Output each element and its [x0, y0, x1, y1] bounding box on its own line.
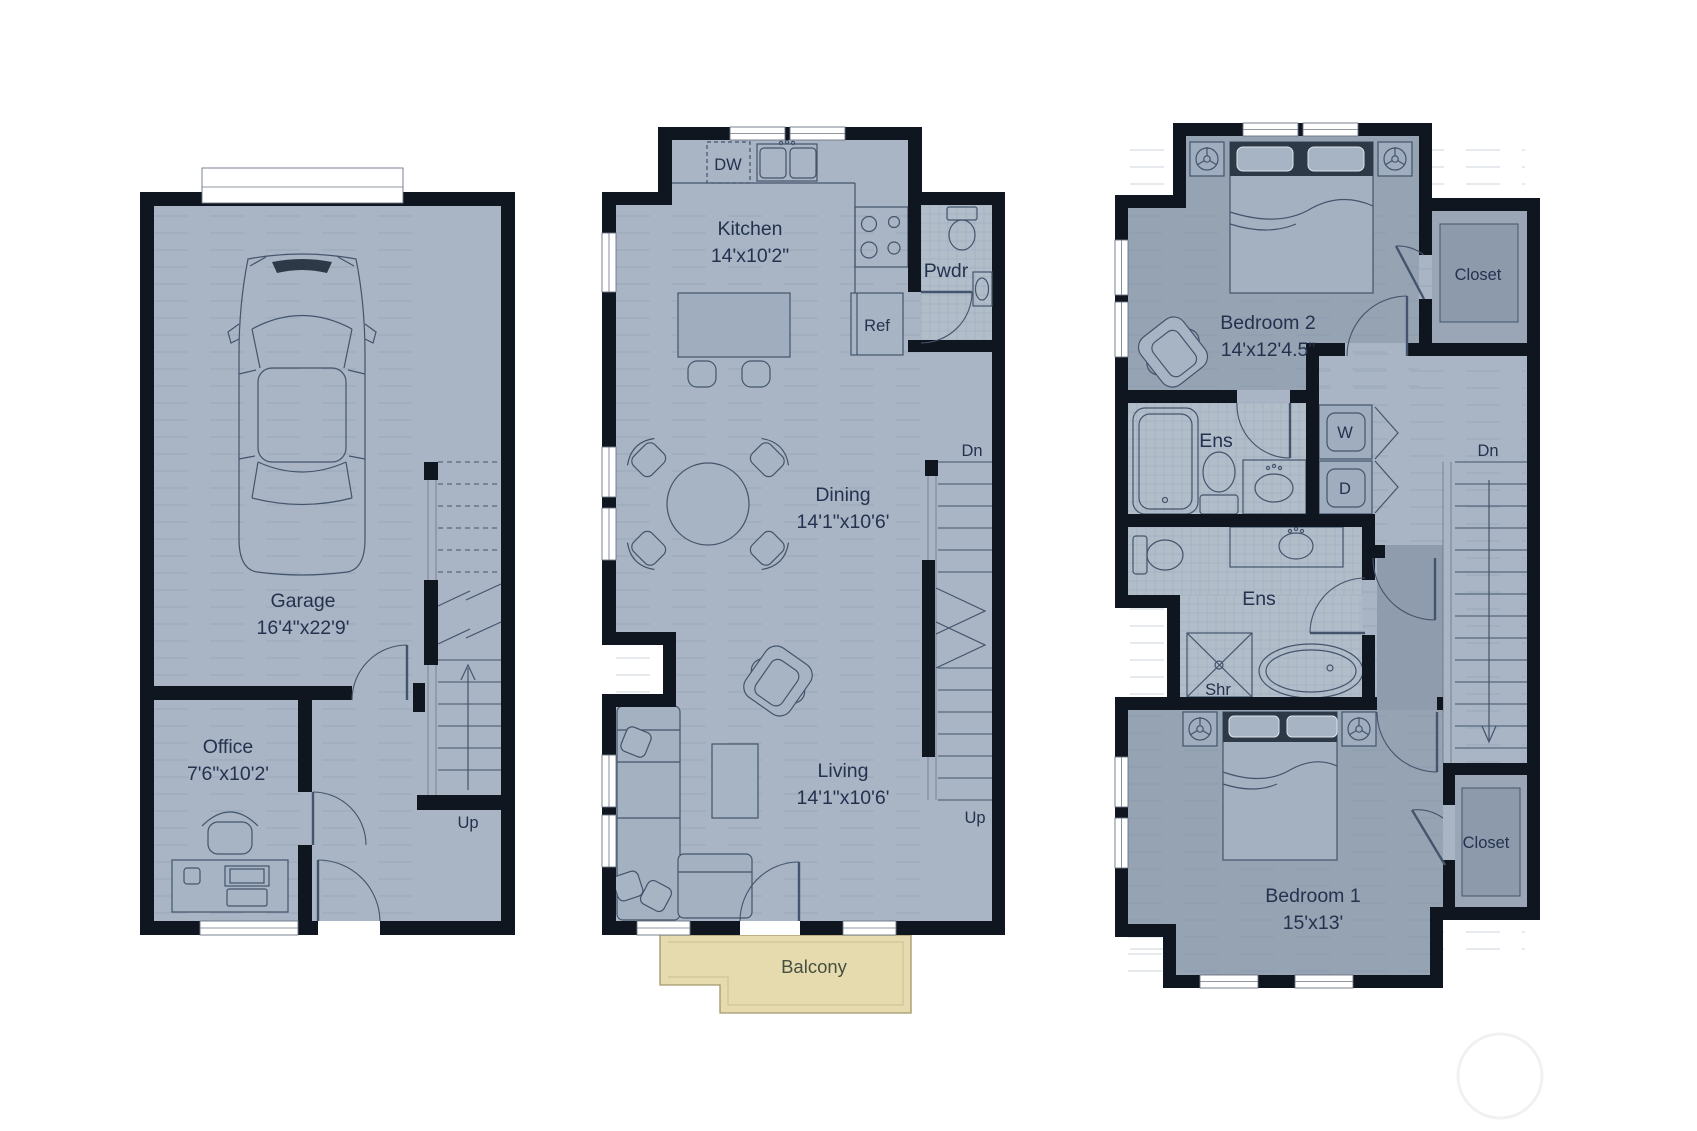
- refrigerator-label: Ref: [864, 317, 890, 335]
- closet-bottom-label: Closet: [1463, 834, 1510, 852]
- window: [602, 755, 616, 807]
- window: [843, 921, 896, 935]
- shower-label: Shr: [1205, 681, 1231, 699]
- floor-plan-image: Garage 16'4"x22'9' Office 7'6"x10'2' Up: [0, 0, 1697, 1131]
- kitchen-dims: 14'x10'2": [711, 245, 789, 267]
- window: [1200, 975, 1258, 988]
- garage-level-plan: Garage 16'4"x22'9' Office 7'6"x10'2' Up: [140, 168, 515, 935]
- window: [1243, 123, 1298, 136]
- watermark: [1458, 1034, 1542, 1118]
- window: [200, 921, 298, 935]
- dining-dims: 14'1"x10'6': [797, 511, 890, 533]
- window: [730, 127, 785, 140]
- closet-top-label: Closet: [1455, 266, 1502, 284]
- dining-label: Dining: [815, 484, 870, 506]
- powder-label: Pwdr: [924, 260, 969, 282]
- bedroom2-label: Bedroom 2: [1220, 312, 1315, 334]
- hall-floor: [1377, 545, 1443, 710]
- nightstand-lamp: [1190, 142, 1224, 176]
- main-level-plan: DW Kitchen 14'x10'2" Pwdr Ref Dining 14'…: [602, 127, 1005, 1013]
- window: [602, 508, 616, 560]
- bedroom1-label: Bedroom 1: [1265, 885, 1360, 907]
- bed-bedroom1: [1223, 712, 1337, 860]
- stool: [742, 361, 770, 387]
- washer-label: W: [1337, 424, 1353, 442]
- bedroom1-dims: 15'x13': [1283, 912, 1344, 934]
- window: [1303, 123, 1358, 136]
- ensuite-bottom-label: Ens: [1242, 588, 1276, 610]
- stairs-up-label: Up: [964, 809, 985, 827]
- window: [1115, 818, 1128, 868]
- stairs-down-label: Dn: [961, 442, 982, 460]
- dishwasher-label: DW: [714, 156, 742, 174]
- bedroom2-dims: 14'x12'4.5": [1221, 339, 1316, 361]
- office-desk: [172, 860, 288, 912]
- stairs-down-label: Dn: [1477, 442, 1498, 460]
- stairs-up-label: Up: [457, 814, 478, 832]
- bedroom-level-plan: Bedroom 2 14'x12'4.5" Closet Ens W D Dn …: [1115, 123, 1540, 988]
- garage-floor: [154, 206, 501, 921]
- window: [1115, 240, 1128, 295]
- living-label: Living: [818, 760, 869, 782]
- window: [602, 815, 616, 867]
- floor-plan-svg: Garage 16'4"x22'9' Office 7'6"x10'2' Up: [0, 0, 1697, 1131]
- office-label: Office: [203, 736, 254, 758]
- window: [602, 447, 616, 497]
- window: [602, 233, 616, 292]
- living-dims: 14'1"x10'6': [797, 787, 890, 809]
- kitchen-label: Kitchen: [717, 218, 782, 240]
- window: [637, 921, 690, 935]
- nightstand-lamp: [1378, 142, 1412, 176]
- window: [1115, 302, 1128, 357]
- garage-door: [202, 168, 403, 203]
- bed-bedroom2: [1230, 142, 1373, 293]
- window: [1115, 757, 1128, 807]
- ensuite-top-label: Ens: [1199, 430, 1233, 452]
- dryer-label: D: [1339, 480, 1351, 498]
- kitchen-island: [678, 293, 790, 357]
- nightstand-lamp: [1183, 712, 1217, 746]
- office-dims: 7'6"x10'2': [187, 763, 269, 785]
- garage-label: Garage: [270, 590, 335, 612]
- stool: [688, 361, 716, 387]
- balcony-label: Balcony: [781, 956, 848, 977]
- coffee-table: [712, 744, 758, 818]
- entry-door-opening: [318, 921, 380, 935]
- window: [1295, 975, 1353, 988]
- window: [790, 127, 845, 140]
- nightstand-lamp: [1342, 712, 1376, 746]
- garage-dims: 16'4"x22'9': [257, 617, 350, 639]
- balcony-door-opening: [740, 921, 800, 935]
